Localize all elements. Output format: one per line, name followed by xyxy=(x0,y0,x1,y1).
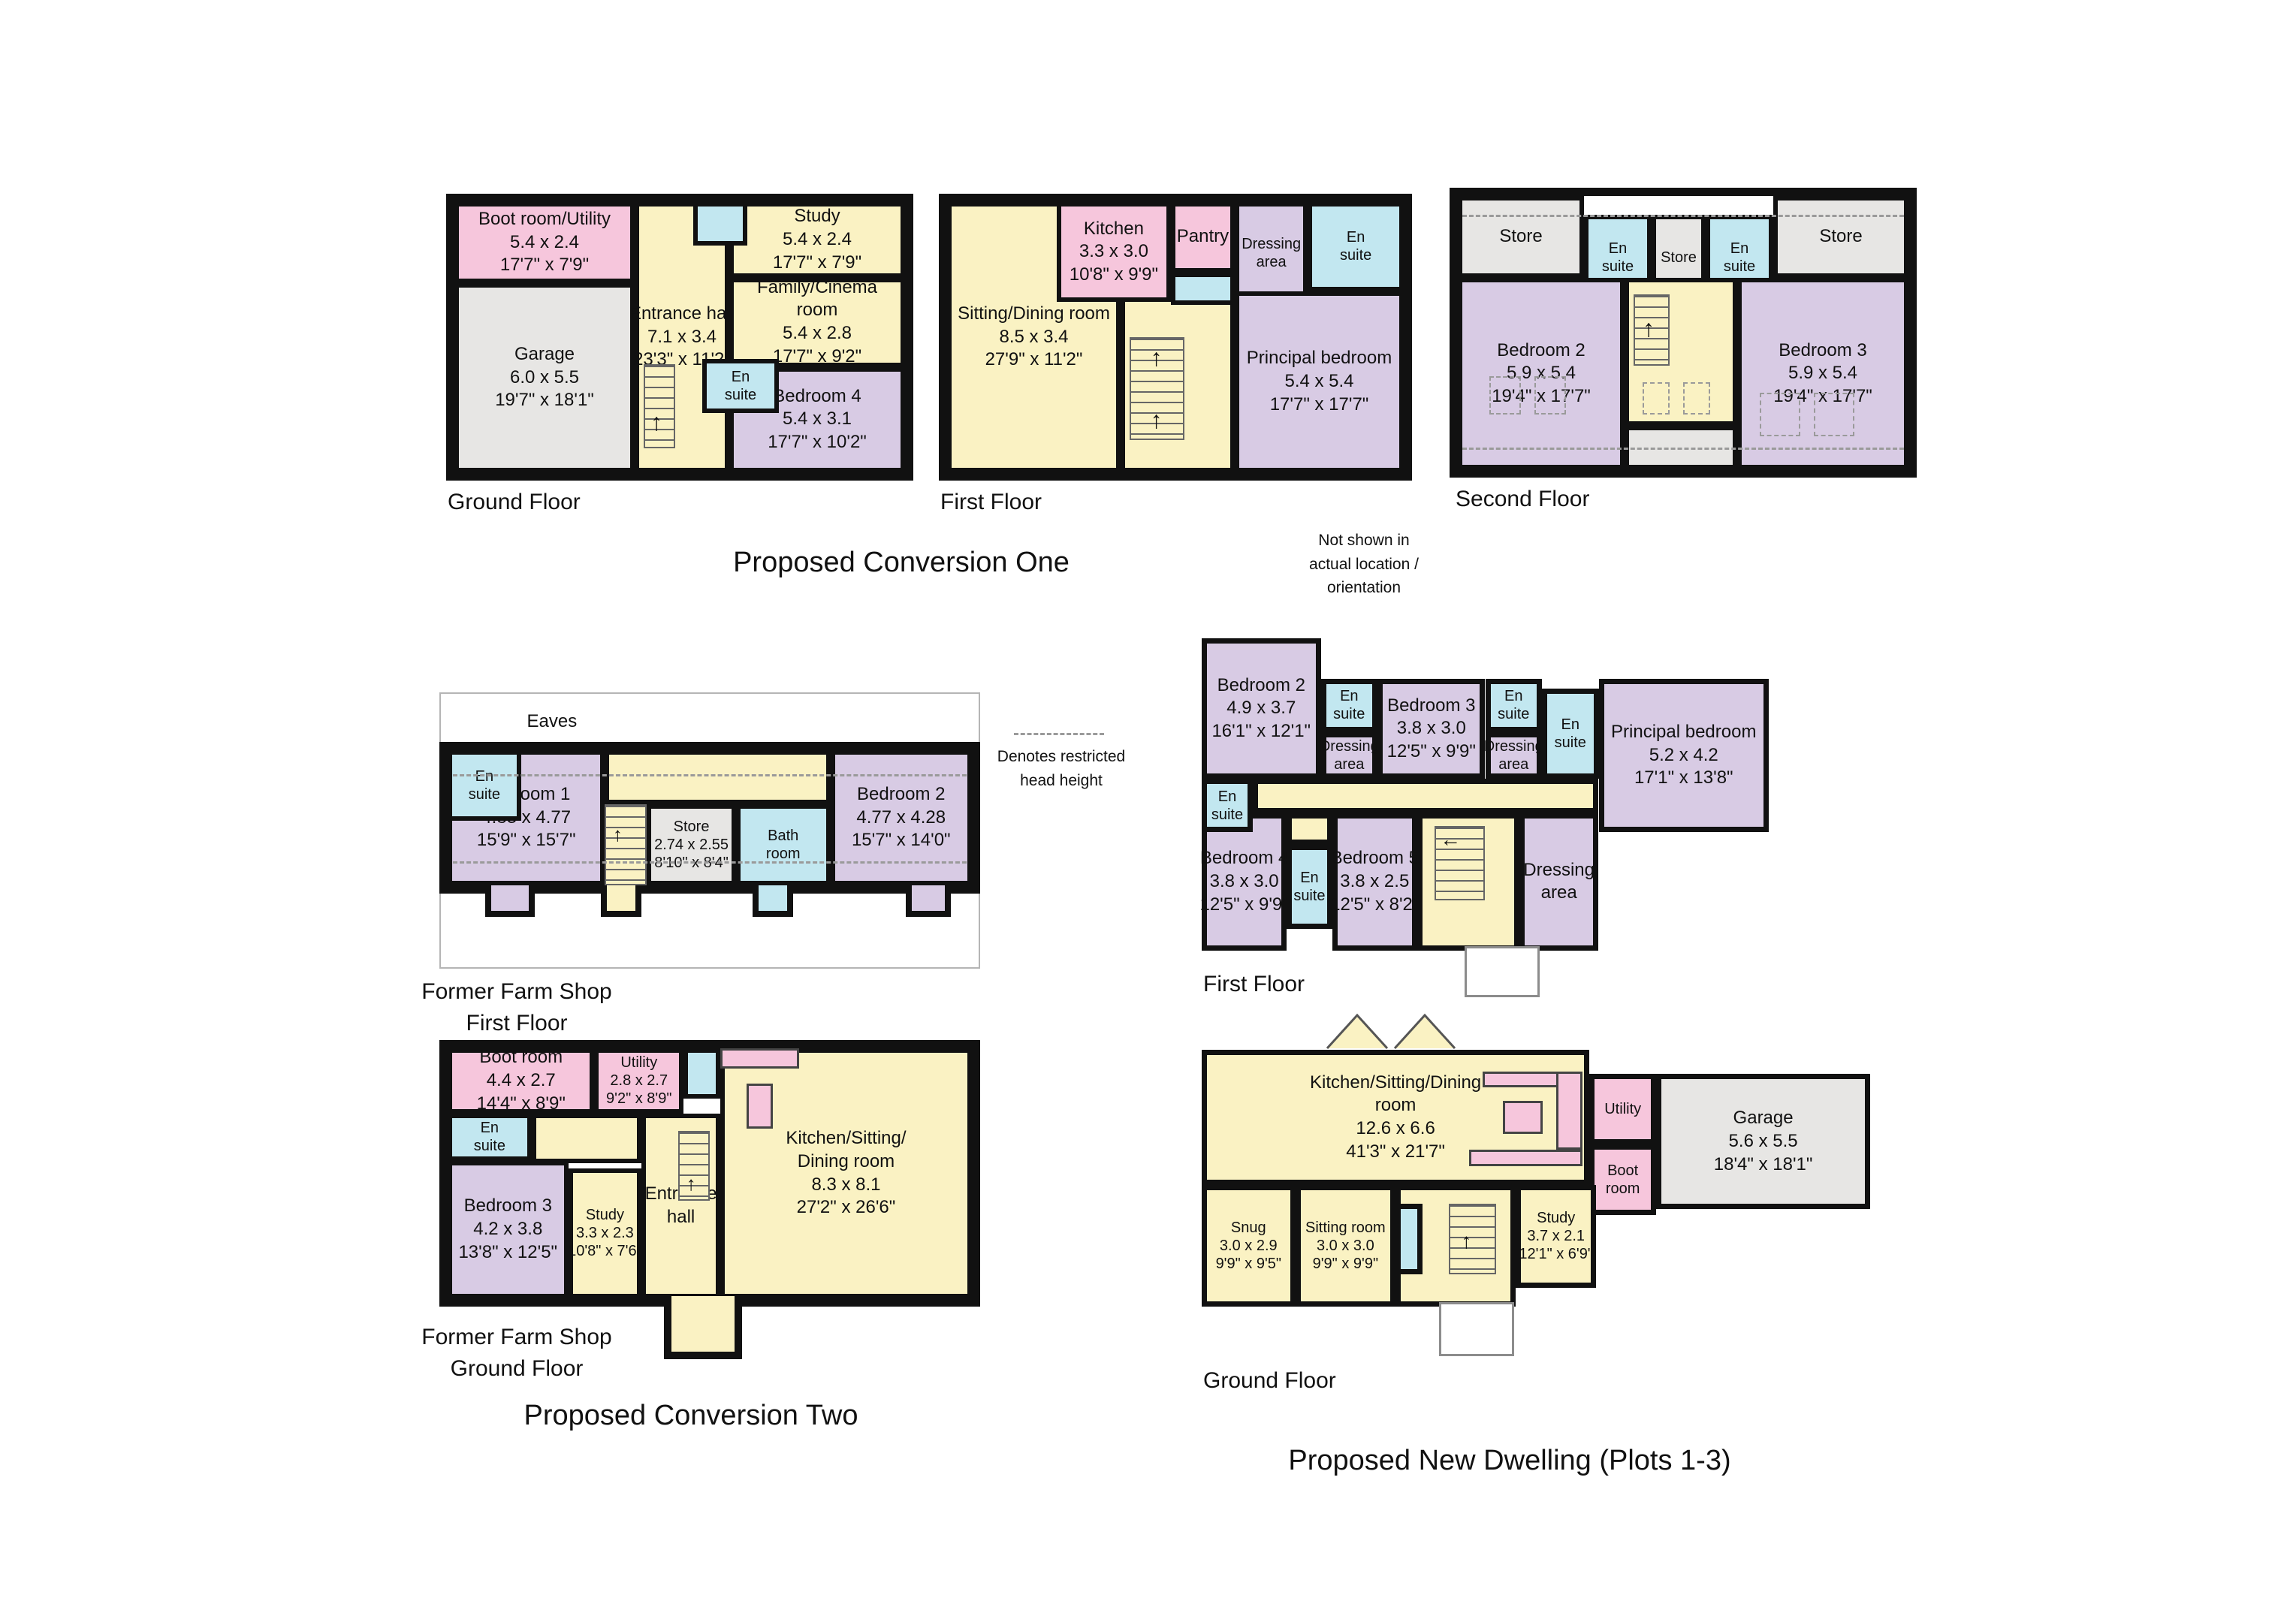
room-label: Ensuite xyxy=(725,368,756,404)
restricted-head-height-line xyxy=(453,861,967,864)
store-room: Store2.74 x 2.558'10" x 8'4" xyxy=(647,804,736,885)
up-arrow-icon: ↑ xyxy=(1151,345,1163,369)
room-label: Study3.3 x 2.310'8" x 7'6" xyxy=(568,1206,642,1260)
up-arrow-icon: ↑ xyxy=(686,1174,696,1193)
wc-room xyxy=(683,1048,720,1099)
room-label: Ensuite xyxy=(1498,687,1529,723)
kitchen-counter xyxy=(720,1048,799,1069)
storage-dashed-box xyxy=(1760,393,1800,436)
bedroom4-room: Bedroom 43.8 x 3.012'5" x 9'9" xyxy=(1202,813,1287,951)
room-label: Study5.4 x 2.417'7" x 7'9" xyxy=(773,205,861,274)
plan-newdwelling-ground-floor: Kitchen/Sitting/Diningroom12.6 x 6.641'3… xyxy=(1202,1036,1870,1307)
en-suite-room: Ensuite xyxy=(1321,679,1378,732)
room-label: Family/Cinemaroom5.4 x 2.817'7" x 9'2" xyxy=(757,276,877,369)
room-label: Ensuite xyxy=(1211,788,1243,824)
en-suite-room: Ensuite xyxy=(1287,845,1332,929)
room-label: Study3.7 x 2.112'1" x 6'9" xyxy=(1519,1209,1593,1263)
plan-newdwelling-first-floor: Bedroom 24.9 x 3.716'1" x 12'1" Ensuite … xyxy=(1202,638,1769,951)
room-label: Store xyxy=(1661,249,1697,267)
title-conversion-one: Proposed Conversion One xyxy=(676,547,1127,579)
dressing-area-room: Dressingarea xyxy=(1321,732,1378,779)
room-label: Dressingarea xyxy=(1523,859,1595,905)
room-label: Principal bedroom5.2 x 4.217'1" x 13'8" xyxy=(1611,721,1756,790)
caption-newdwelling-ground: Ground Floor xyxy=(1203,1368,1336,1394)
store-room: Store xyxy=(1458,196,1584,278)
kitchen-counter xyxy=(1556,1072,1583,1150)
sitting-room: Sitting room3.0 x 3.09'9" x 9'9" xyxy=(1296,1185,1396,1307)
plan-farmshop-ground-floor: Boot room4.4 x 2.714'4" x 8'9" Utility2.… xyxy=(439,1040,980,1307)
room-label: Kitchen/Sitting/Diningroom12.6 x 6.641'3… xyxy=(1310,1072,1481,1164)
bedroom2-room: Bedroom 24.9 x 3.716'1" x 12'1" xyxy=(1202,638,1321,779)
kitchen-counter xyxy=(1469,1150,1582,1166)
storage-dashed-box xyxy=(1814,393,1854,436)
room-label: Boot room4.4 x 2.714'4" x 8'9" xyxy=(477,1046,566,1115)
room-label: Bedroom 33.8 x 3.012'5" x 9'9" xyxy=(1387,695,1476,764)
stairs-icon xyxy=(605,804,647,885)
plan-conv1-second-floor: Store Ensuite Store Ensuite Store Bedroo… xyxy=(1450,188,1917,478)
kitchen-island xyxy=(1503,1101,1543,1133)
room-label: Kitchen/Sitting/Dining room8.3 x 8.127'2… xyxy=(786,1127,906,1220)
room-label: Sitting room3.0 x 3.09'9" x 9'9" xyxy=(1305,1219,1386,1273)
bedroom3-room: Bedroom 35.9 x 5.419'4" x 17'7" xyxy=(1737,278,1908,469)
corridor-room xyxy=(1253,779,1599,813)
room-label: Bedroom 24.9 x 3.716'1" x 12'1" xyxy=(1211,674,1311,743)
corridor-room xyxy=(1287,813,1332,845)
room-label: Bedroom 45.4 x 3.117'7" x 10'2" xyxy=(768,385,867,454)
bedroom3-room: Bedroom 33.8 x 3.012'5" x 9'9" xyxy=(1377,679,1485,779)
room-label: Dressingarea xyxy=(1320,737,1379,773)
room-label: Ensuite xyxy=(474,1119,505,1155)
dressing-area-room: Dressingarea xyxy=(1235,202,1308,305)
snug-room: Snug3.0 x 2.99'9" x 9'5" xyxy=(1202,1185,1296,1307)
up-arrow-icon: ↑ xyxy=(1151,408,1163,432)
room-label: Garage5.6 x 5.518'4" x 18'1" xyxy=(1714,1107,1813,1176)
up-arrow-icon: ↑ xyxy=(1643,316,1655,340)
room-label: Bootroom xyxy=(1606,1162,1640,1198)
room-label: Ensuite xyxy=(1555,716,1586,752)
plan-conv1-ground-floor: Boot room/Utility5.4 x 2.417'7" x 7'9" G… xyxy=(446,194,913,481)
restricted-head-height-line xyxy=(453,774,967,776)
porch-outline xyxy=(1439,1302,1514,1356)
caption-farmshop-ground: Former Farm ShopGround Floor xyxy=(359,1322,674,1385)
plan-farmshop-first-floor: Bedroom 14.83 x 4.7715'9" x 15'7" Store2… xyxy=(439,742,980,894)
room-label: Ensuite xyxy=(1340,228,1371,264)
family-cinema-room: Family/Cinemaroom5.4 x 2.817'7" x 9'2" xyxy=(729,278,905,367)
boot-room: Boot room4.4 x 2.714'4" x 8'9" xyxy=(448,1048,594,1114)
en-suite-room: Ensuite xyxy=(448,750,521,821)
room-label: Principal bedroom5.4 x 5.417'7" x 17'7" xyxy=(1247,347,1392,416)
porch-outline xyxy=(1465,946,1540,997)
wc-room xyxy=(1395,1204,1423,1274)
garage-room: Garage6.0 x 5.519'7" x 18'1" xyxy=(454,283,635,472)
storage-dashed-box xyxy=(1643,382,1670,415)
restricted-head-height-line xyxy=(1462,215,1904,217)
boot-room: Bootroom xyxy=(1589,1144,1656,1215)
up-arrow-icon: ↑ xyxy=(613,825,623,844)
dressing-area-room: Dressingarea xyxy=(1486,732,1543,779)
storage-dashed-box xyxy=(1489,376,1521,415)
room-label: Bedroom 53.8 x 2.512'5" x 8'2" xyxy=(1330,847,1419,916)
en-suite-room: Ensuite xyxy=(1542,689,1599,779)
room-label: Kitchen3.3 x 3.010'8" x 9'9" xyxy=(1070,218,1158,287)
bedroom3-room: Bedroom 34.2 x 3.813'8" x 12'5" xyxy=(448,1161,569,1298)
utility-room: Utility2.8 x 2.79'2" x 8'9" xyxy=(594,1048,683,1114)
up-arrow-icon: ↑ xyxy=(1461,1231,1471,1252)
pantry-room: Pantry xyxy=(1171,202,1235,273)
bedroom2-room: Bedroom 24.77 x 4.2815'7" x 14'0" xyxy=(831,750,972,885)
room-label: Boot room/Utility5.4 x 2.417'7" x 7'9" xyxy=(478,208,611,277)
principal-bedroom-room: Principal bedroom5.4 x 5.417'7" x 17'7" xyxy=(1235,291,1404,472)
caption-farmshop-first: Former Farm ShopFirst Floor xyxy=(359,976,674,1039)
room-label: Utility xyxy=(1604,1100,1641,1118)
boot-room-utility: Boot room/Utility5.4 x 2.417'7" x 7'9" xyxy=(454,202,635,283)
study-room: Study3.7 x 2.112'1" x 6'9" xyxy=(1516,1185,1596,1288)
restricted-head-height-line xyxy=(1462,448,1904,450)
room-label: Ensuite xyxy=(1293,869,1325,905)
room-label: Snug3.0 x 2.99'9" x 9'5" xyxy=(1216,1219,1281,1273)
study-room: Study5.4 x 2.417'7" x 7'9" xyxy=(729,202,905,278)
room-label: Bathroom xyxy=(766,827,801,863)
room-label: Store2.74 x 2.558'10" x 8'4" xyxy=(654,818,729,872)
caption-conv1-first: First Floor xyxy=(940,490,1042,515)
room-label: Pantry xyxy=(1177,225,1229,249)
bathroom-room: Bathroom xyxy=(736,804,831,885)
restricted-head-height-dash xyxy=(1014,733,1104,735)
dormer-tab xyxy=(753,885,793,917)
room-label: Ensuite xyxy=(1724,240,1755,276)
room-label: Store xyxy=(1819,225,1862,249)
wc-room xyxy=(693,202,747,246)
room-label: Ensuite xyxy=(1333,687,1365,723)
room-label: Ensuite xyxy=(1602,240,1634,276)
dormer-tab xyxy=(485,885,535,917)
storage-dashed-box xyxy=(1534,376,1566,415)
wc-room xyxy=(1171,273,1235,305)
stairs-icon xyxy=(1449,1204,1495,1274)
en-suite-room: Ensuite xyxy=(448,1114,532,1161)
up-arrow-icon: ↑ xyxy=(650,410,662,434)
kitchen-island xyxy=(747,1084,773,1129)
en-suite-room: Ensuite xyxy=(1308,202,1404,291)
note-orientation: Not shown inactual location /orientation xyxy=(1277,529,1451,600)
room-label: Bedroom 24.77 x 4.2815'7" x 14'0" xyxy=(852,783,951,852)
caption-newdwelling-first: First Floor xyxy=(1203,972,1305,997)
room-label: Ensuite xyxy=(469,767,500,803)
caption-conv1-second: Second Floor xyxy=(1456,487,1589,512)
room-label: Garage6.0 x 5.519'7" x 18'1" xyxy=(495,343,594,412)
en-suite-room: Ensuite xyxy=(1202,779,1253,832)
room-label: Bedroom 34.2 x 3.813'8" x 12'5" xyxy=(458,1195,557,1264)
en-suite-room: Ensuite xyxy=(1486,679,1543,732)
landing-room xyxy=(605,750,830,804)
dormer-tab xyxy=(906,885,951,917)
kitchen-room: Kitchen3.3 x 3.010'8" x 9'9" xyxy=(1057,202,1171,302)
bedroom5-room: Bedroom 53.8 x 2.512'5" x 8'2" xyxy=(1332,813,1417,951)
note-restricted: Denotes restrictedhead height xyxy=(984,745,1139,792)
room-label: Utility2.8 x 2.79'2" x 8'9" xyxy=(606,1054,671,1108)
dressing-area-room: Dressingarea xyxy=(1519,813,1599,951)
corridor-room xyxy=(532,1114,642,1164)
utility-room: Utility xyxy=(1589,1074,1656,1144)
eaves-label: Eaves xyxy=(527,710,578,734)
plan-conv1-first-floor: Sitting/Dining room8.5 x 3.427'9" x 11'2… xyxy=(939,194,1412,481)
store-room: Store xyxy=(1773,196,1908,278)
left-arrow-icon: ← xyxy=(1440,829,1461,850)
caption-conv1-ground: Ground Floor xyxy=(448,490,581,515)
en-suite-room: Ensuite xyxy=(702,359,779,413)
room-label: Dressingarea xyxy=(1242,235,1301,271)
room-label: Sitting/Dining room8.5 x 3.427'9" x 11'2… xyxy=(958,303,1110,372)
title-conversion-two: Proposed Conversion Two xyxy=(496,1400,886,1432)
study-room: Study3.3 x 2.310'8" x 7'6" xyxy=(569,1168,642,1298)
storage-dashed-box xyxy=(1683,382,1710,415)
entrance-porch xyxy=(664,1296,742,1359)
room-label: Bedroom 43.8 x 3.012'5" x 9'9" xyxy=(1199,847,1288,916)
title-new-dwelling: Proposed New Dwelling (Plots 1-3) xyxy=(1269,1445,1750,1477)
room-label: Store xyxy=(1499,225,1542,249)
dormer-tab xyxy=(601,885,641,917)
principal-bedroom-room: Principal bedroom5.2 x 4.217'1" x 13'8" xyxy=(1599,679,1770,832)
bedroom2-room: Bedroom 25.9 x 5.419'4" x 17'7" xyxy=(1458,278,1625,469)
room-label: Dressingarea xyxy=(1484,737,1543,773)
garage-room: Garage5.6 x 5.518'4" x 18'1" xyxy=(1656,1074,1870,1209)
